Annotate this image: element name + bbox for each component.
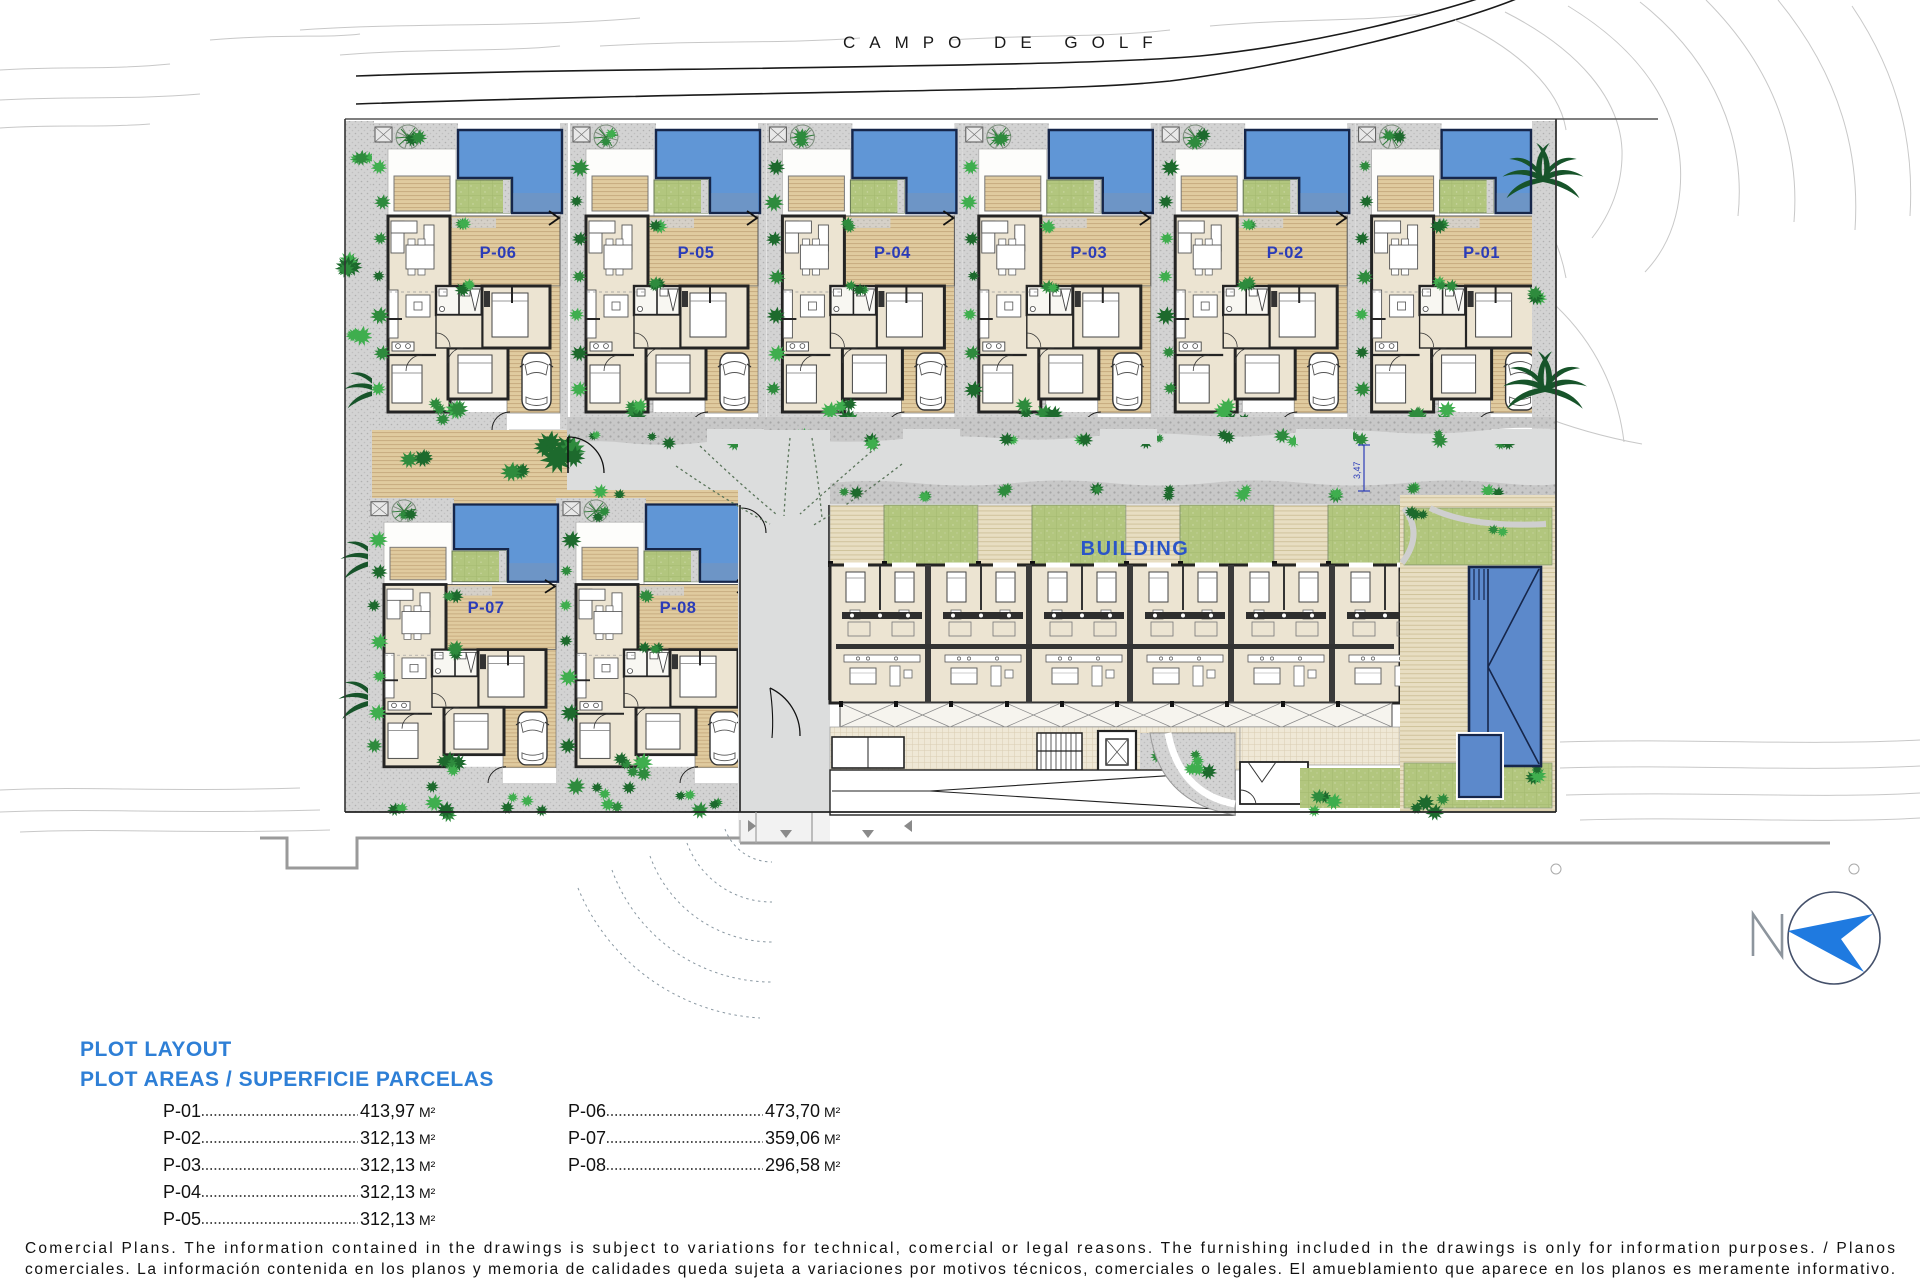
svg-text:P-03: P-03 [1070, 244, 1107, 262]
svg-text:P-03: P-03 [163, 1155, 201, 1175]
svg-text:P-07: P-07 [468, 599, 505, 617]
svg-text:comerciales. La información co: comerciales. La información contenida en… [25, 1261, 1895, 1278]
svg-text:P-04: P-04 [874, 244, 911, 262]
svg-text:312,13 M²: 312,13 M² [360, 1182, 436, 1202]
svg-text:P-05: P-05 [678, 244, 715, 262]
svg-text:P-08: P-08 [660, 599, 697, 617]
svg-text:312,13 M²: 312,13 M² [360, 1128, 436, 1148]
svg-text:Comercial Plans. The informati: Comercial Plans. The information contain… [25, 1240, 1895, 1257]
svg-text:413,97 M²: 413,97 M² [360, 1101, 436, 1121]
svg-text:359,06 M²: 359,06 M² [765, 1128, 841, 1148]
svg-text:P-07: P-07 [568, 1128, 606, 1148]
svg-text:P-02: P-02 [1267, 244, 1304, 262]
svg-text:BUILDING: BUILDING [1081, 538, 1190, 560]
svg-text:P-02: P-02 [163, 1128, 201, 1148]
svg-text:P-01: P-01 [163, 1101, 201, 1121]
svg-text:P-04: P-04 [163, 1182, 201, 1202]
svg-text:312,13 M²: 312,13 M² [360, 1209, 436, 1229]
svg-text:P-06: P-06 [480, 244, 517, 262]
svg-text:P-01: P-01 [1463, 244, 1500, 262]
svg-text:296,58 M²: 296,58 M² [765, 1155, 841, 1175]
svg-text:CAMPO DE GOLF: CAMPO DE GOLF [843, 33, 1167, 52]
svg-text:P-05: P-05 [163, 1209, 201, 1229]
svg-text:P-08: P-08 [568, 1155, 606, 1175]
svg-text:473,70 M²: 473,70 M² [765, 1101, 841, 1121]
svg-text:PLOT AREAS / SUPERFICIE PARCEL: PLOT AREAS / SUPERFICIE PARCELAS [80, 1068, 494, 1091]
svg-text:P-06: P-06 [568, 1101, 606, 1121]
svg-text:3,47: 3,47 [1352, 461, 1362, 479]
svg-text:PLOT LAYOUT: PLOT LAYOUT [80, 1038, 232, 1061]
svg-text:312,13 M²: 312,13 M² [360, 1155, 436, 1175]
